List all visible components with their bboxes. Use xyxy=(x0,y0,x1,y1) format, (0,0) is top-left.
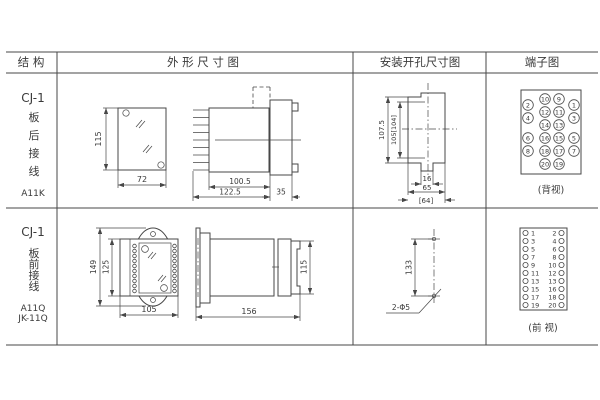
terminal-number: 10 xyxy=(548,261,556,269)
terminal-circle xyxy=(173,284,177,288)
terminal-circle xyxy=(173,259,177,263)
row2-install-view: 2-Φ5 133 xyxy=(386,229,441,313)
terminal-circle xyxy=(133,254,137,258)
terminal-pins xyxy=(193,110,209,170)
terminal-circle xyxy=(559,254,564,259)
terminal-number: 10 xyxy=(541,95,549,103)
row1-front-view: 115 72 xyxy=(94,108,166,188)
terminal-number: 6 xyxy=(552,245,556,253)
terminal-number: 5 xyxy=(572,134,576,142)
terminal-number: 7 xyxy=(531,253,535,261)
terminal-circle xyxy=(173,279,177,283)
dim-side-depth: 100.5 xyxy=(229,177,251,186)
terminal-number: 14 xyxy=(541,121,549,129)
terminal-circle xyxy=(133,264,137,268)
dim-side-height: 115 xyxy=(300,260,309,275)
header-install-dims: 安装开孔尺寸图 xyxy=(380,55,461,69)
terminal-circle xyxy=(523,294,528,299)
terminal-circle xyxy=(523,230,528,235)
terminal-number: 8 xyxy=(526,147,530,155)
terminal-circle xyxy=(133,284,137,288)
row2-terminal-diagram: 1234567891011121313151617181920 (前 视) xyxy=(520,228,567,334)
dim-front-h-inner: 125 xyxy=(102,260,111,275)
terminal-number: 9 xyxy=(557,95,561,103)
terminal-number: 6 xyxy=(526,134,530,142)
terminal-number: 15 xyxy=(555,134,563,142)
terminal-number: 3 xyxy=(572,114,576,122)
row1-code: A11K xyxy=(21,189,46,199)
terminal-circle xyxy=(173,289,177,293)
terminal-number: 16 xyxy=(541,134,549,142)
row1-char-1: 板 xyxy=(29,110,40,124)
terminal-number: 18 xyxy=(541,147,549,155)
terminal-circle xyxy=(133,274,137,278)
terminal-circle xyxy=(523,238,528,243)
dim-install-h-inner: 105[104] xyxy=(390,115,398,145)
terminal-number: 3 xyxy=(531,237,535,245)
terminal-number: 5 xyxy=(531,245,535,253)
dim-side-length: 156 xyxy=(241,307,256,316)
terminal-circle xyxy=(133,279,137,283)
row1-side-view: 100.5 122.5 35 xyxy=(193,87,301,201)
row2-view-label: (前 视) xyxy=(528,322,557,334)
terminal-number: 16 xyxy=(548,285,556,293)
terminal-number: 7 xyxy=(572,147,576,155)
terminal-number: 13 xyxy=(531,277,539,285)
terminal-circle xyxy=(523,270,528,275)
terminal-number: 12 xyxy=(541,108,549,116)
terminal-number: 19 xyxy=(531,301,539,309)
terminal-circle xyxy=(133,249,137,253)
dim-front-height: 115 xyxy=(94,131,103,146)
terminal-circle xyxy=(133,259,137,263)
dim-install-width: 65 xyxy=(423,184,432,192)
dim-install-holes: 2-Φ5 xyxy=(392,303,410,312)
terminal-circle xyxy=(133,269,137,273)
dim-front-width: 72 xyxy=(137,175,147,184)
row2-code-1: A11Q xyxy=(21,304,46,314)
terminal-number: 18 xyxy=(548,293,556,301)
terminal-number: 8 xyxy=(552,253,556,261)
terminal-circle xyxy=(523,254,528,259)
dim-install-width-alt: [64] xyxy=(419,197,434,205)
terminal-number: 9 xyxy=(531,261,535,269)
terminal-circle xyxy=(173,274,177,278)
header-outline-dims: 外 形 尺 寸 图 xyxy=(167,55,239,69)
hidden-outline xyxy=(253,87,270,108)
terminal-number: 20 xyxy=(548,301,556,309)
terminal-number: 20 xyxy=(541,160,549,168)
terminal-circle xyxy=(523,302,528,307)
terminal-number: 2 xyxy=(552,229,556,237)
row1-char-4: 线 xyxy=(29,164,40,178)
header-structure: 结 构 xyxy=(18,55,45,69)
dim-front-width: 105 xyxy=(141,305,156,314)
terminal-circle xyxy=(559,270,564,275)
row2-side-view: 115 156 xyxy=(196,228,314,321)
dim-install-pitch: 133 xyxy=(405,260,414,275)
header-terminal-diagram: 端子图 xyxy=(525,55,560,69)
row2-model: CJ-1 xyxy=(21,225,44,239)
terminal-number: 11 xyxy=(531,269,539,277)
row1-char-2: 后 xyxy=(29,129,40,142)
drawing-canvas: 结 构 外 形 尺 寸 图 安装开孔尺寸图 端子图 CJ-1 板 后 接 线 A… xyxy=(0,0,600,400)
terminal-circle xyxy=(133,289,137,293)
dim-side-flange: 35 xyxy=(276,188,286,197)
terminal-number: 15 xyxy=(531,285,539,293)
row2-front-view: 149 125 105 xyxy=(89,228,178,318)
terminal-circle xyxy=(173,254,177,258)
terminal-number: 13 xyxy=(548,277,556,285)
terminal-number: 11 xyxy=(555,108,563,116)
terminal-number: 13 xyxy=(555,121,563,129)
terminal-circle xyxy=(173,264,177,268)
row2-structure-cell: CJ-1 板 前 接 线 A11Q JK-11Q xyxy=(17,225,47,324)
terminal-number: 17 xyxy=(531,293,539,301)
datasheet-page: 结 构 外 形 尺 寸 图 安装开孔尺寸图 端子图 CJ-1 板 后 接 线 A… xyxy=(0,0,600,400)
terminal-circle xyxy=(559,286,564,291)
dim-side-total: 122.5 xyxy=(219,188,241,197)
row2-code-2: JK-11Q xyxy=(17,314,47,324)
row1-install-view: 107.5 105[104] 16 65 [64] xyxy=(378,83,457,205)
terminal-circle xyxy=(559,238,564,243)
row1-char-3: 接 xyxy=(29,147,40,160)
terminal-number: 4 xyxy=(526,114,530,122)
row1-structure-cell: CJ-1 板 后 接 线 A11K xyxy=(21,91,46,199)
row1-terminal-diagram: 1091211141316151817201924681357 (背视) xyxy=(521,90,581,196)
table-grid xyxy=(6,52,598,345)
row1-model: CJ-1 xyxy=(21,91,44,105)
terminal-circle xyxy=(173,244,177,248)
terminal-circle xyxy=(559,230,564,235)
terminal-circle xyxy=(559,302,564,307)
terminal-circle xyxy=(173,249,177,253)
terminal-circle xyxy=(133,244,137,248)
terminal-circle xyxy=(523,262,528,267)
terminal-circle xyxy=(559,246,564,251)
terminal-number: 1 xyxy=(572,101,576,109)
row2-char-4: 线 xyxy=(29,279,40,293)
terminal-circle xyxy=(559,294,564,299)
leader-line xyxy=(419,289,441,313)
row1-view-label: (背视) xyxy=(538,184,564,196)
terminal-circle xyxy=(559,278,564,283)
dim-install-notch: 16 xyxy=(423,175,432,183)
dim-front-h-outer: 149 xyxy=(89,260,98,275)
terminal-circle xyxy=(559,262,564,267)
terminal-number: 17 xyxy=(555,147,563,155)
terminal-number: 19 xyxy=(555,160,563,168)
terminal-circle xyxy=(523,278,528,283)
dim-install-h-outer: 107.5 xyxy=(378,120,386,140)
terminal-circle xyxy=(173,269,177,273)
terminal-circle xyxy=(523,246,528,251)
terminal-number: 4 xyxy=(552,237,556,245)
terminal-number: 1 xyxy=(531,229,535,237)
terminal-number: 2 xyxy=(526,101,530,109)
terminal-circle xyxy=(523,286,528,291)
terminal-number: 12 xyxy=(548,269,556,277)
table-header-row: 结 构 外 形 尺 寸 图 安装开孔尺寸图 端子图 xyxy=(18,55,560,69)
